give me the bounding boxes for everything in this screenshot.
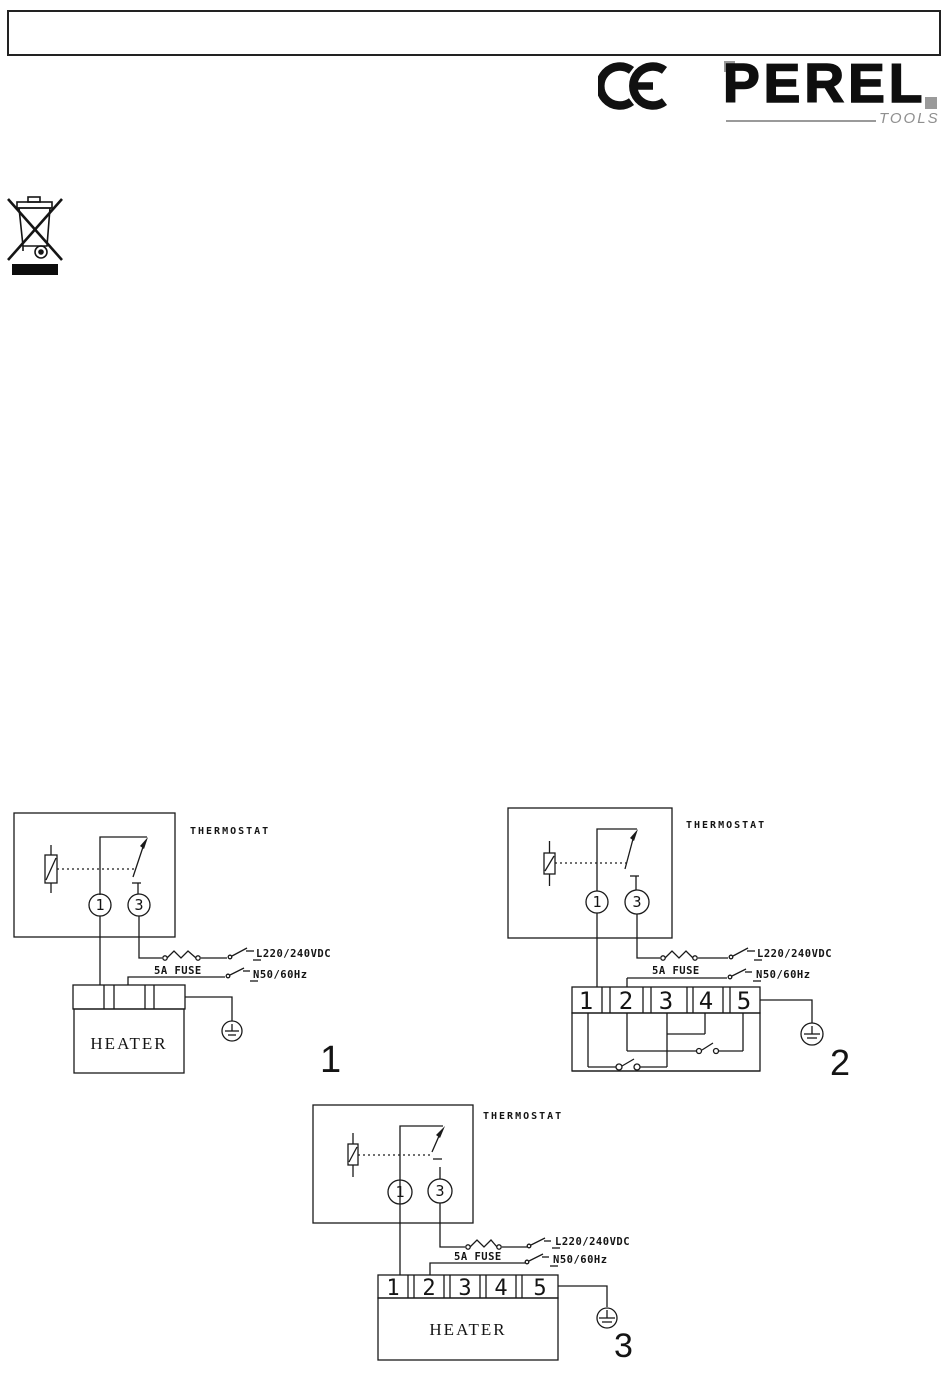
terminal-number: 4 bbox=[699, 987, 713, 1015]
thermostat-label: THERMOSTAT bbox=[483, 1111, 563, 1122]
fuse-icon bbox=[661, 951, 697, 960]
terminal-number: 4 bbox=[494, 1276, 507, 1301]
heater-label: HEATER bbox=[90, 1034, 167, 1053]
terminal-number: 1 bbox=[386, 1276, 399, 1301]
line-voltage-label: L220/240VDC bbox=[555, 1236, 630, 1248]
line-switch-icon bbox=[527, 1238, 551, 1248]
sensor-icon bbox=[45, 845, 57, 893]
thermostat-label: THERMOSTAT bbox=[686, 820, 766, 831]
fuse-label: 5A FUSE bbox=[454, 1251, 502, 1263]
perel-logo: PEREL TOOLS bbox=[721, 57, 943, 133]
neutral-switch-icon bbox=[728, 969, 752, 979]
header-note-box bbox=[7, 10, 941, 56]
neutral-label: N50/60Hz bbox=[253, 969, 308, 981]
neutral-switch-icon bbox=[226, 968, 250, 978]
switch-arrow-icon bbox=[630, 829, 638, 841]
ce-mark-icon bbox=[598, 60, 678, 114]
neutral-label: N50/60Hz bbox=[553, 1254, 608, 1266]
terminal-number: 1 bbox=[579, 987, 593, 1015]
thermostat-label: THERMOSTAT bbox=[190, 826, 270, 837]
manual-page: PEREL TOOLS THERMOSTAT bbox=[0, 0, 950, 1398]
fuse-icon bbox=[466, 1240, 501, 1249]
thermostat-box bbox=[508, 808, 672, 938]
contact-3-number: 3 bbox=[435, 1182, 444, 1200]
wiring-diagram-3: THERMOSTAT 1 3 L220/240VDC bbox=[300, 1095, 660, 1398]
fuse-label: 5A FUSE bbox=[154, 965, 202, 977]
switch-arrow-icon bbox=[140, 837, 148, 849]
brand-name: PEREL bbox=[723, 57, 926, 109]
earth-ground-icon bbox=[597, 1308, 617, 1328]
line-voltage-label: L220/240VDC bbox=[757, 948, 832, 960]
heater-label: HEATER bbox=[429, 1320, 506, 1339]
link-switch-icon bbox=[616, 1059, 640, 1070]
figure-number: 2 bbox=[830, 1042, 850, 1083]
sensor-icon bbox=[348, 1133, 358, 1177]
earth-ground-icon bbox=[801, 1023, 823, 1045]
link-box bbox=[572, 1013, 760, 1071]
logo-corner-square bbox=[925, 97, 937, 109]
line-switch-icon bbox=[228, 948, 254, 959]
neutral-switch-icon bbox=[525, 1254, 549, 1264]
switch-arrow-icon bbox=[436, 1126, 445, 1138]
figure-number: 3 bbox=[614, 1327, 633, 1365]
thermostat-box bbox=[313, 1105, 473, 1223]
brand-tagline: TOOLS bbox=[879, 110, 940, 127]
terminal-strip bbox=[73, 985, 185, 1009]
terminal-number: 3 bbox=[458, 1276, 471, 1301]
line-voltage-label: L220/240VDC bbox=[256, 948, 331, 960]
terminal-number: 5 bbox=[533, 1276, 546, 1301]
terminal-number: 2 bbox=[422, 1276, 435, 1301]
wiring-diagram-1: THERMOSTAT 1 3 bbox=[0, 800, 360, 1090]
contact-3-number: 3 bbox=[134, 896, 143, 914]
fuse-icon bbox=[163, 951, 200, 960]
earth-ground-icon bbox=[222, 1021, 242, 1041]
figure-number: 1 bbox=[320, 1039, 341, 1081]
contact-3-number: 3 bbox=[632, 893, 641, 911]
neutral-label: N50/60Hz bbox=[756, 969, 811, 981]
brand-rule bbox=[726, 120, 876, 122]
wiring-diagram-2: THERMOSTAT 1 3 L220/240VDC bbox=[490, 795, 910, 1090]
fuse-label: 5A FUSE bbox=[652, 965, 700, 977]
terminal-number: 3 bbox=[659, 987, 673, 1015]
terminal-number: 5 bbox=[737, 987, 751, 1015]
sensor-icon bbox=[544, 841, 555, 886]
link-switch-icon bbox=[697, 1043, 719, 1054]
weee-icon bbox=[5, 194, 69, 276]
terminal-number: 2 bbox=[619, 987, 633, 1015]
line-switch-icon bbox=[729, 948, 755, 959]
contact-1-number: 1 bbox=[95, 896, 104, 914]
thermostat-box bbox=[14, 813, 175, 937]
contact-1-number: 1 bbox=[592, 893, 601, 911]
